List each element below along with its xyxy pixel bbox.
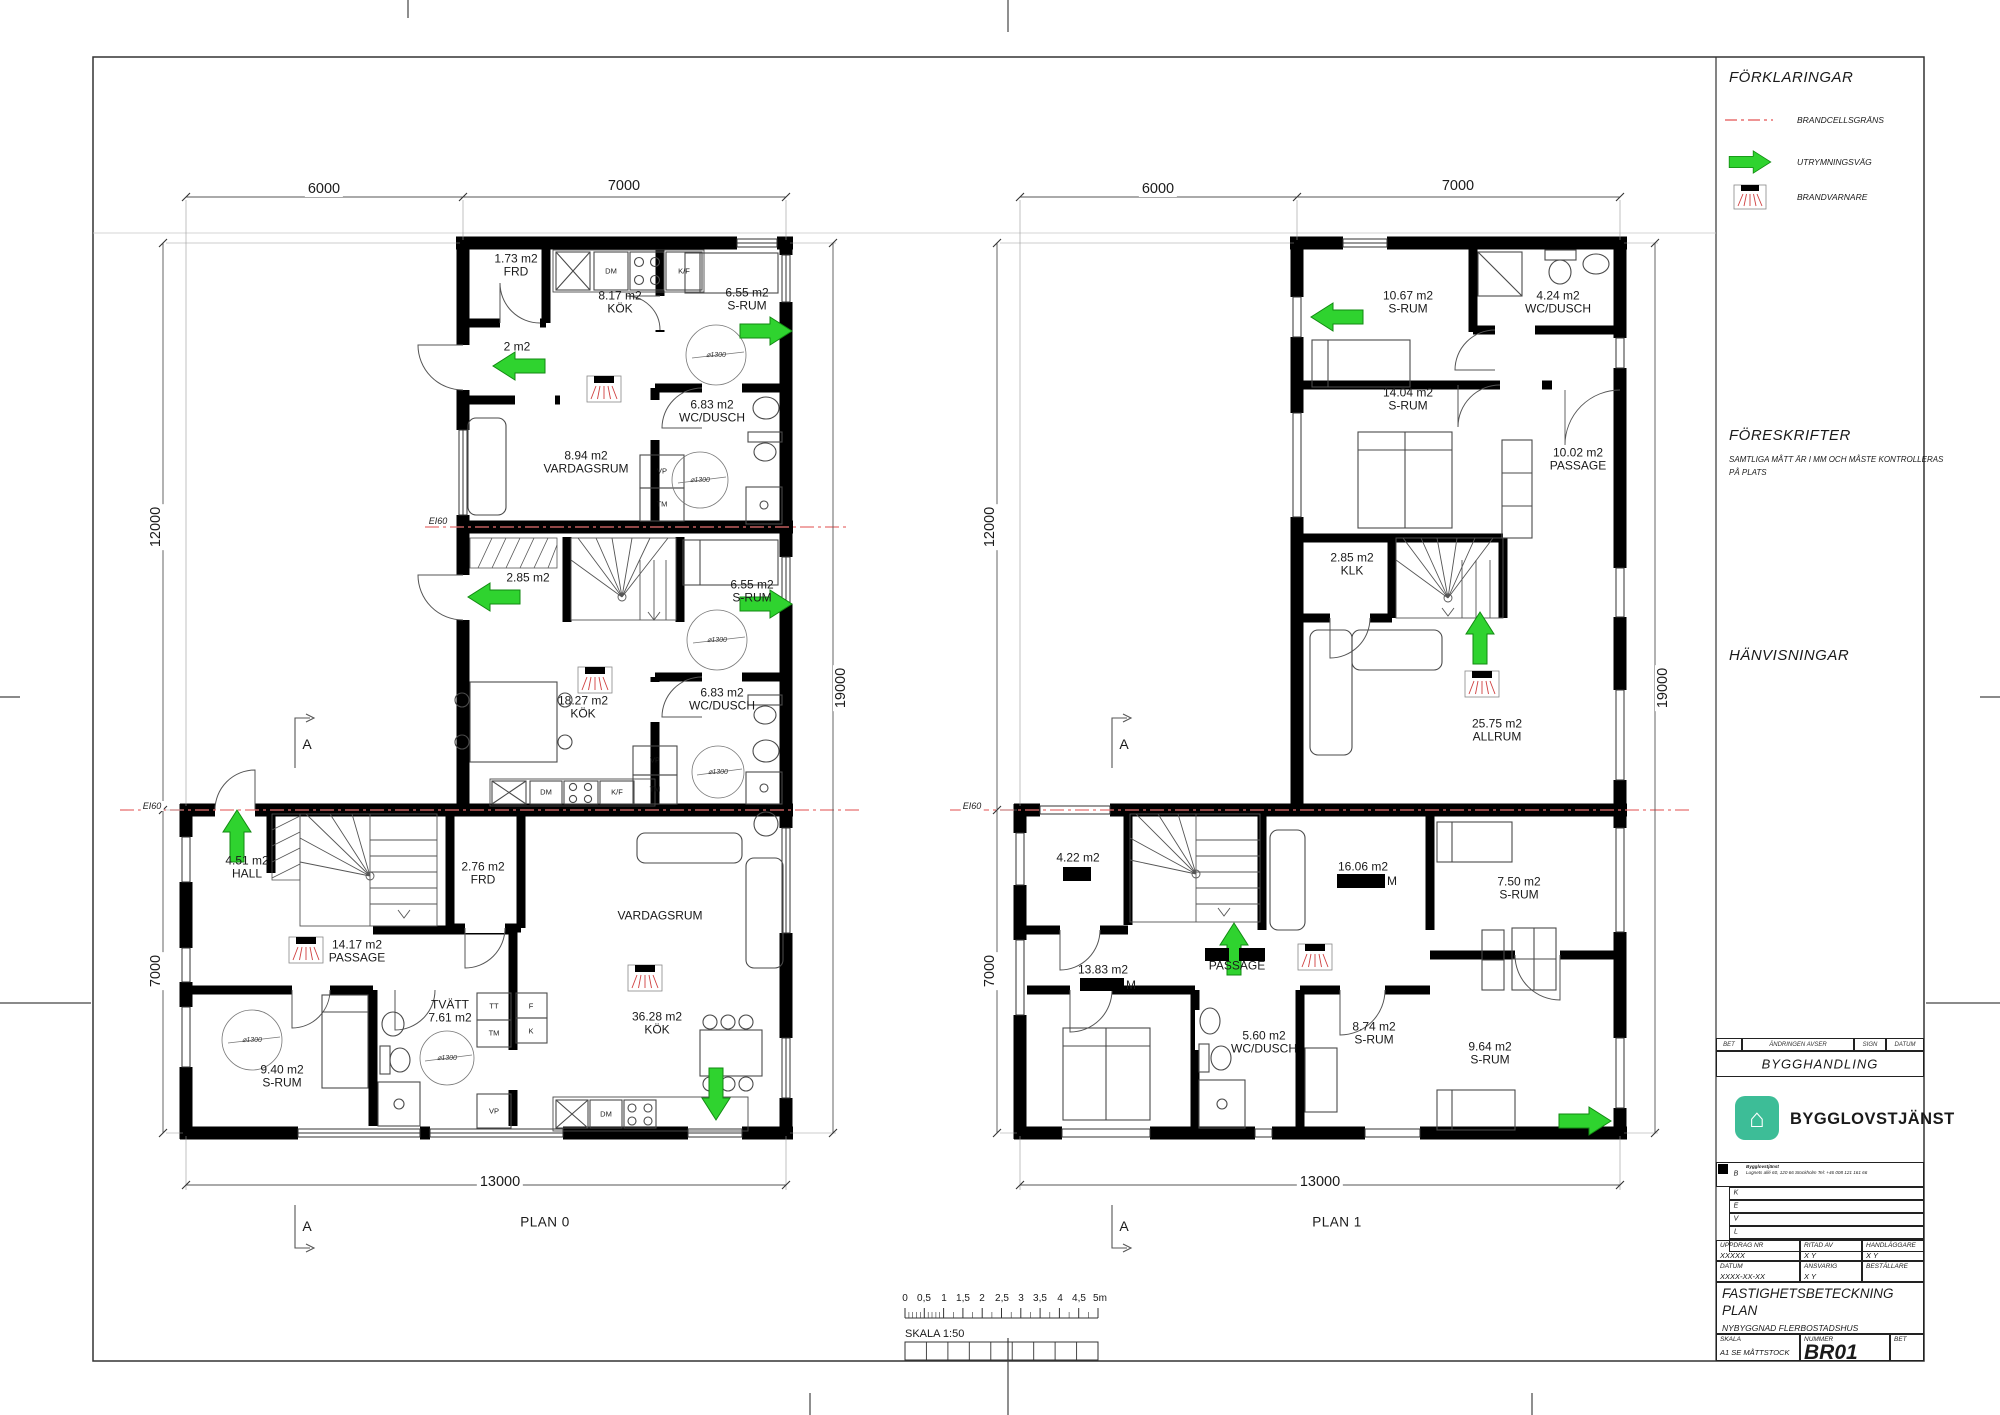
scalebar-tick: 1,5 — [956, 1293, 970, 1304]
scalebar-tick: 2,5 — [995, 1293, 1009, 1304]
closet-label-vp: VP — [650, 756, 660, 765]
closet-label-vp: VP — [489, 1107, 499, 1116]
room-label-frd-top: 1.73 m2FRD — [494, 253, 537, 280]
room-label-wc-560: 5.60 m2WC/DUSCH — [1231, 1030, 1297, 1057]
revhdr-bet: BET — [1723, 1042, 1735, 1048]
ei60-label: EI60 — [961, 801, 984, 811]
turning-circle-label: ⌀1300 — [708, 768, 728, 776]
room-label-srum-964: 9.64 m2S-RUM — [1468, 1041, 1511, 1068]
room-label-vardagsrum-top: 8.94 m2VARDAGSRUM — [543, 450, 628, 477]
appliance-label-dm: DM — [605, 267, 617, 276]
room-label-passage-1002: 10.02 m2PASSAGE — [1550, 447, 1606, 474]
room-label-frd-bot: 2.76 m2FRD — [461, 861, 504, 888]
house-icon: ⌂ — [1749, 1103, 1765, 1134]
rev-letter: K — [1734, 1190, 1739, 1197]
legend-label-brandvarnare: BRANDVARNARE — [1797, 192, 1867, 202]
plan0-hatch-areas — [272, 538, 557, 880]
redacted-room-name — [1063, 867, 1091, 881]
room-label-kok-bot: 36.28 m2KÖK — [632, 1011, 682, 1038]
appliance-label-dm: DM — [540, 788, 552, 797]
ansvarig-value: X Y — [1804, 1272, 1816, 1281]
smoke-detector-symbol — [1732, 183, 1768, 213]
revhdr-sign: SIGN — [1863, 1042, 1878, 1048]
redacted-area-value — [1239, 948, 1265, 961]
rev-row — [1729, 1200, 1924, 1213]
room-label-vardagsrum-bot: VARDAGSRUM — [617, 909, 702, 922]
section-marker-letter: A — [302, 1218, 311, 1234]
ritad-label: RITAD AV — [1804, 1242, 1833, 1249]
plan0-door-openings — [215, 296, 742, 1090]
skala-label: SKALA — [1720, 1336, 1741, 1343]
closet-label-f: F — [529, 1002, 534, 1011]
rev-row — [1729, 1213, 1924, 1226]
dim-13000: 13000 — [477, 1174, 523, 1190]
company-address: Lugnets allé 60, 120 66 Stockholm Tel: +… — [1746, 1170, 1867, 1175]
uppdrag-value: XXXXX — [1720, 1251, 1745, 1260]
revhdr-andringen: ÄNDRINGEN AVSER — [1769, 1042, 1826, 1048]
closet-label-tm: TM — [657, 500, 668, 509]
legend-title: FÖRKLARINGAR — [1729, 69, 1853, 86]
room-label-srum-top: 6.55 m2S-RUM — [725, 287, 768, 314]
rev-letter: V — [1734, 1216, 1739, 1223]
skala-value: A1 SE MÅTTSTOCK — [1720, 1348, 1789, 1357]
appliance-label-kf: K/F — [611, 788, 623, 797]
fastighetsbeteckning: FASTIGHETSBETECKNING — [1722, 1286, 1894, 1301]
company-name: Bygglovstjänst — [1746, 1164, 1779, 1169]
legend-label-brandcellsgrans: BRANDCELLSGRÄNS — [1797, 115, 1884, 125]
scalebar-tick: 3,5 — [1033, 1293, 1047, 1304]
plan1-title: PLAN 1 — [1312, 1215, 1362, 1230]
dim-19000: 19000 — [833, 665, 849, 711]
turning-circle-label: ⌀1300 — [690, 476, 710, 484]
room-label-srum-1404: 14.04 m2S-RUM — [1383, 387, 1433, 414]
subtitle-nybyggnad: NYBYGGNAD FLERBOSTADSHUS — [1722, 1323, 1858, 1333]
bet-label: BET — [1894, 1336, 1922, 1343]
plan1-walls — [1014, 237, 1627, 1139]
company-info: Bygglovstjänst Lugnets allé 60, 120 66 S… — [1746, 1164, 1867, 1175]
scalebar-tick: 2 — [979, 1293, 985, 1304]
ansvarig-label: ANSVARIG — [1804, 1263, 1837, 1270]
room-label-hall-bot: 4.51 m2HALL — [225, 855, 268, 882]
plan0-stairs-mid — [571, 538, 676, 620]
scalebar-tick: 0 — [902, 1293, 908, 1304]
appliance-label-dm: DM — [600, 1110, 612, 1119]
dim-19000: 19000 — [1655, 665, 1671, 711]
room-label-srum-bot: 9.40 m2S-RUM — [260, 1064, 303, 1091]
dim-7000: 7000 — [1439, 178, 1477, 194]
appliance-label-kf: K/F — [678, 267, 690, 276]
drawing-sheet: 1.73 m2FRD 8.17 m2KÖK 6.55 m2S-RUM 2 m2 … — [0, 0, 2000, 1415]
closet-label-vp: VP — [657, 467, 667, 476]
dim-12000: 12000 — [982, 504, 998, 550]
scalebar-tick: 3 — [1018, 1293, 1024, 1304]
room-label-wc-top: 6.83 m2WC/DUSCH — [679, 399, 745, 426]
scalebar-tick: 4 — [1057, 1293, 1063, 1304]
closet-label-tm: TM — [650, 785, 661, 794]
bygghandling-label: BYGGHANDLING — [1762, 1057, 1879, 1072]
redacted-room-name — [1337, 874, 1385, 888]
closet-label-tm: TM — [489, 1029, 500, 1038]
ei60-label: EI60 — [427, 516, 450, 526]
ritad-value: X Y — [1804, 1251, 1816, 1260]
legend-label-utrymningsvag: UTRYMNINGSVÄG — [1797, 157, 1872, 167]
scalebar-tick: 1 — [941, 1293, 947, 1304]
rev-row — [1729, 1226, 1924, 1239]
plan1-stairs-upper — [1396, 538, 1503, 618]
room-label-hall-top: 2 m2 — [504, 340, 531, 353]
room-label-wc-424: 4.24 m2WC/DUSCH — [1525, 290, 1591, 317]
scalebar-tick: 5m — [1093, 1293, 1107, 1304]
ei60-label: EI60 — [141, 801, 164, 811]
scale-label: SKALA 1:50 — [905, 1328, 964, 1340]
dim-7000: 7000 — [148, 952, 164, 990]
room-label-passage-bot: 14.17 m2PASSAGE — [329, 939, 385, 966]
plan1-doors — [1060, 330, 1620, 1035]
room-label-422: 4.22 m2 — [1056, 851, 1099, 864]
rev-row — [1729, 1187, 1924, 1200]
section-marker-letter: A — [1119, 1218, 1128, 1234]
bestallare-label: BESTÄLLARE — [1866, 1263, 1908, 1270]
closet-label-k: K — [528, 1027, 533, 1036]
plan0-turning-circles — [222, 325, 747, 1085]
redacted-name-suffix: M — [1126, 978, 1136, 992]
redacted-area-value — [1205, 948, 1229, 961]
closet-label-tt: TT — [489, 1002, 498, 1011]
room-label-kok-mid: 18.27 m2KÖK — [558, 695, 608, 722]
foreskrifter-line1: SAMTLIGA MÅTT ÄR I MM OCH MÅSTE KONTROLL… — [1729, 455, 1943, 464]
room-label-kok-top: 8.17 m2KÖK — [598, 290, 641, 317]
fold-marks — [0, 0, 2000, 1415]
section-markers — [295, 714, 1131, 1252]
drawing-number: BR01 — [1804, 1341, 1858, 1365]
handlaggare-value: X Y — [1866, 1251, 1878, 1260]
plan1-windows — [1013, 236, 1627, 1140]
turning-circle-label: ⌀1300 — [242, 1036, 262, 1044]
plan0-stairs-bottom — [300, 814, 437, 926]
room-label-passage2: PASSAGE — [1209, 959, 1265, 972]
room-label-1606: 16.06 m2 — [1338, 860, 1388, 873]
revhdr-datum: DATUM — [1895, 1042, 1916, 1048]
firecell-boundary-lines — [120, 527, 1692, 810]
room-label-klk: 2.85 m2KLK — [1330, 552, 1373, 579]
dim-13000: 13000 — [1297, 1174, 1343, 1190]
redacted-room-name — [1080, 978, 1124, 991]
scalebar-tick: 4,5 — [1072, 1293, 1086, 1304]
foreskrifter-line2: PÅ PLATS — [1729, 468, 1767, 477]
evacuation-arrow-symbol — [1728, 149, 1772, 175]
turning-circle-label: ⌀1300 — [707, 636, 727, 644]
room-label-srum-mid: 6.55 m2S-RUM — [730, 579, 773, 606]
turning-circle-label: ⌀1300 — [437, 1054, 457, 1062]
room-label-srum-874: 8.74 m2S-RUM — [1352, 1021, 1395, 1048]
firecell-line-symbol — [1723, 115, 1775, 125]
dim-7000: 7000 — [982, 952, 998, 990]
info-panel: FÖRKLARINGAR BRANDCELLSGRÄNS UTRYMNINGSV… — [1716, 57, 1924, 1361]
dim-7000: 7000 — [605, 178, 643, 194]
hanvisningar-title: HÄNVISNINGAR — [1729, 647, 1849, 664]
datum-value: XXXX-XX-XX — [1720, 1272, 1765, 1281]
plan1-stairs-lower — [1130, 814, 1260, 922]
logo-wordmark: BYGGLOVSTJÄNST — [1790, 1110, 1955, 1129]
datum-label: DATUM — [1720, 1263, 1743, 1270]
title-plan: PLAN — [1722, 1303, 1757, 1318]
dim-6000: 6000 — [305, 181, 343, 197]
room-label-hall-mid: 2.85 m2 — [506, 571, 549, 584]
plan0-title: PLAN 0 — [520, 1215, 570, 1230]
scalebar-tick: 0,5 — [917, 1293, 931, 1304]
room-label-wc-mid: 6.83 m2WC/DUSCH — [689, 687, 755, 714]
dim-6000: 6000 — [1139, 181, 1177, 197]
sheet-frame — [93, 57, 1924, 1361]
room-label-allrum: 25.75 m2ALLRUM — [1472, 718, 1522, 745]
bygglovstjanst-logo: ⌂ — [1735, 1096, 1779, 1140]
dim-12000: 12000 — [148, 504, 164, 550]
dimension-lines — [159, 193, 1659, 1190]
rev-letter: E — [1734, 1203, 1739, 1210]
room-label-tvatt: TVÄTT7.61 m2 — [428, 999, 471, 1026]
floorplan-linework — [0, 0, 2000, 1415]
uppdrag-label: UPPDRAG NR — [1720, 1242, 1763, 1249]
section-marker-letter: A — [302, 736, 311, 752]
rev-letter: L — [1734, 1229, 1738, 1236]
room-label-srum-1067: 10.67 m2S-RUM — [1383, 290, 1433, 317]
section-marker-letter: A — [1119, 736, 1128, 752]
room-label-srum-750: 7.50 m2S-RUM — [1497, 876, 1540, 903]
rev-marker-square — [1718, 1164, 1728, 1174]
rev-letter: B — [1734, 1171, 1739, 1178]
turning-circle-label: ⌀1300 — [706, 351, 726, 359]
foreskrifter-title: FÖRESKRIFTER — [1729, 427, 1851, 444]
room-label-1383: 13.83 m2 — [1078, 963, 1128, 976]
handlaggare-label: HANDLÄGGARE — [1866, 1242, 1916, 1249]
redacted-name-suffix: M — [1387, 874, 1397, 888]
